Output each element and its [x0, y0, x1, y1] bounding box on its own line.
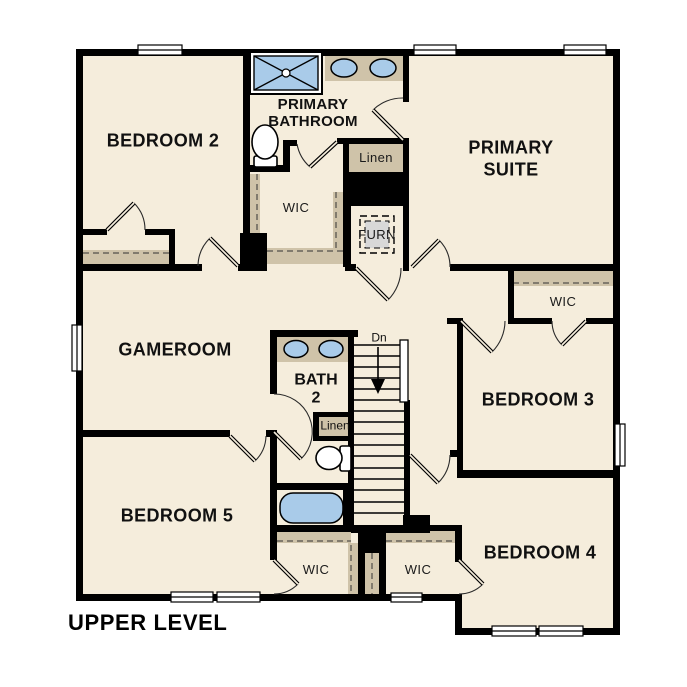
sink	[370, 59, 396, 77]
bedroom3-wic-shelf	[513, 271, 613, 286]
room-label-bath-2-line1: BATH	[294, 373, 337, 390]
room-label-primary-suite-line1: PRIMARY	[468, 139, 553, 158]
utility-label-furnace: FURN	[358, 228, 396, 242]
closet-label-wic-bedroom5: WIC	[303, 563, 329, 577]
shower	[250, 52, 322, 94]
floor-plan: BEDROOM 2 PRIMARY BATHROOM PRIMARY SUITE…	[0, 0, 687, 687]
room-label-bath-2-line2: 2	[312, 391, 321, 408]
sink	[284, 341, 308, 358]
closet-label-wic-bedroom3: WIC	[550, 295, 576, 309]
primary-wic-shelf-left	[250, 174, 260, 233]
bedroom5-wic-shelf-right	[348, 543, 358, 594]
stairs-label-down: Dn	[371, 332, 386, 345]
room-label-bedroom-4: BEDROOM 4	[484, 544, 597, 563]
room-label-gameroom: GAMEROOM	[118, 341, 231, 360]
room-label-bedroom-3: BEDROOM 3	[482, 391, 595, 410]
window	[564, 45, 606, 55]
window	[171, 592, 213, 602]
window	[492, 626, 536, 636]
room-label-bedroom-2: BEDROOM 2	[107, 132, 220, 151]
room-label-primary-bathroom-line1: PRIMARY	[278, 97, 349, 113]
window	[217, 592, 260, 602]
room-label-primary-suite-line2: SUITE	[483, 161, 538, 180]
window	[414, 45, 456, 55]
window	[138, 45, 182, 55]
bedroom2-closet-shelf	[83, 250, 169, 266]
window	[72, 325, 82, 371]
sink	[319, 341, 343, 358]
closet-label-wic-primary: WIC	[283, 201, 309, 215]
sink	[331, 59, 357, 77]
stair-rail	[400, 340, 408, 402]
room-label-bedroom-5: BEDROOM 5	[121, 507, 234, 526]
bathtub	[280, 493, 343, 523]
room-label-primary-bathroom-line2: BATHROOM	[268, 114, 358, 130]
window	[539, 626, 583, 636]
primary-wic-shelf-right	[333, 192, 343, 248]
window	[391, 593, 422, 602]
closet-label-linen-bath2: Linen	[320, 420, 349, 433]
closet-label-wic-bedroom4: WIC	[405, 563, 431, 577]
toilet	[316, 446, 351, 471]
primary-wic-shelf-bottom	[267, 248, 343, 264]
closet-label-linen-primary: Linen	[359, 151, 393, 165]
window	[615, 424, 625, 466]
plan-title: UPPER LEVEL	[68, 610, 227, 636]
toilet	[252, 125, 278, 167]
